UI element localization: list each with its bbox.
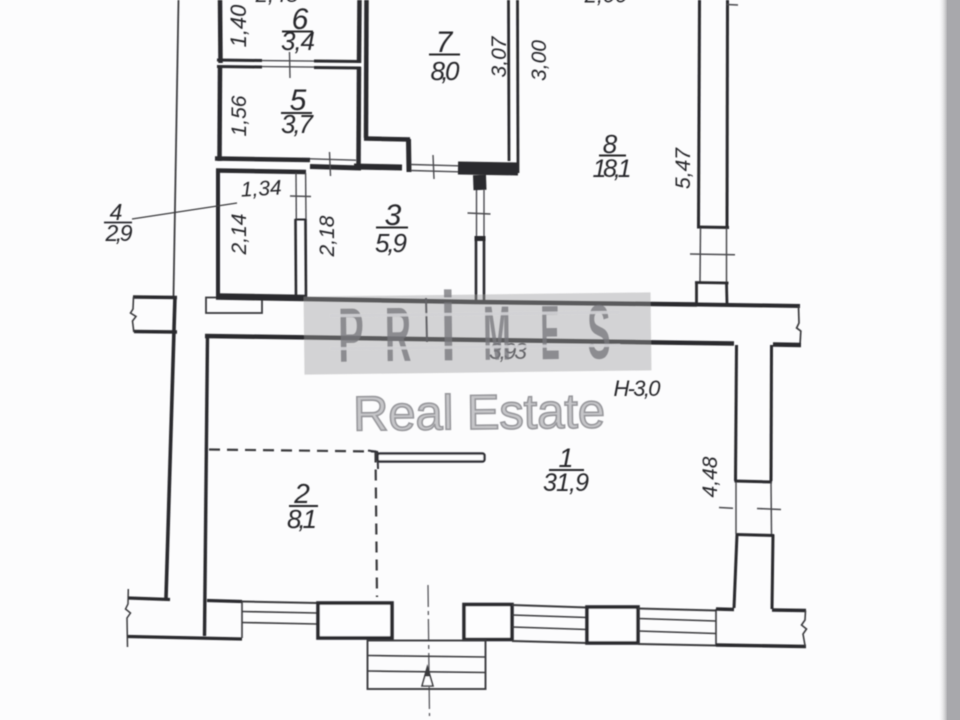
svg-text:3,00: 3,00 <box>528 40 551 81</box>
svg-text:2,14: 2,14 <box>228 214 251 256</box>
svg-text:2,9: 2,9 <box>105 220 133 246</box>
svg-text:Real Estate: Real Estate <box>353 384 606 441</box>
svg-text:M: M <box>483 289 512 376</box>
svg-text:1,40: 1,40 <box>226 4 251 48</box>
svg-text:4,48: 4,48 <box>699 456 722 497</box>
svg-text:R: R <box>384 292 411 378</box>
svg-text:1,56: 1,56 <box>228 95 251 136</box>
svg-text:31,9: 31,9 <box>543 469 589 497</box>
svg-text:8,1: 8,1 <box>287 504 317 534</box>
svg-text:1,34: 1,34 <box>240 176 282 201</box>
svg-text:S: S <box>587 289 611 376</box>
svg-text:18,1: 18,1 <box>593 155 632 183</box>
svg-text:3,7: 3,7 <box>281 109 315 139</box>
svg-text:5,9: 5,9 <box>375 228 407 258</box>
svg-text:P: P <box>338 292 365 378</box>
svg-text:E: E <box>540 290 560 376</box>
svg-text:3,07: 3,07 <box>488 35 511 77</box>
svg-text:8,0: 8,0 <box>431 56 461 86</box>
svg-text:5,47: 5,47 <box>672 147 695 189</box>
svg-text:2,18: 2,18 <box>316 215 339 257</box>
svg-text:2,00: 2,00 <box>584 0 629 8</box>
svg-text:3,4: 3,4 <box>281 26 315 56</box>
svg-text:Н-3,0: Н-3,0 <box>614 376 662 401</box>
